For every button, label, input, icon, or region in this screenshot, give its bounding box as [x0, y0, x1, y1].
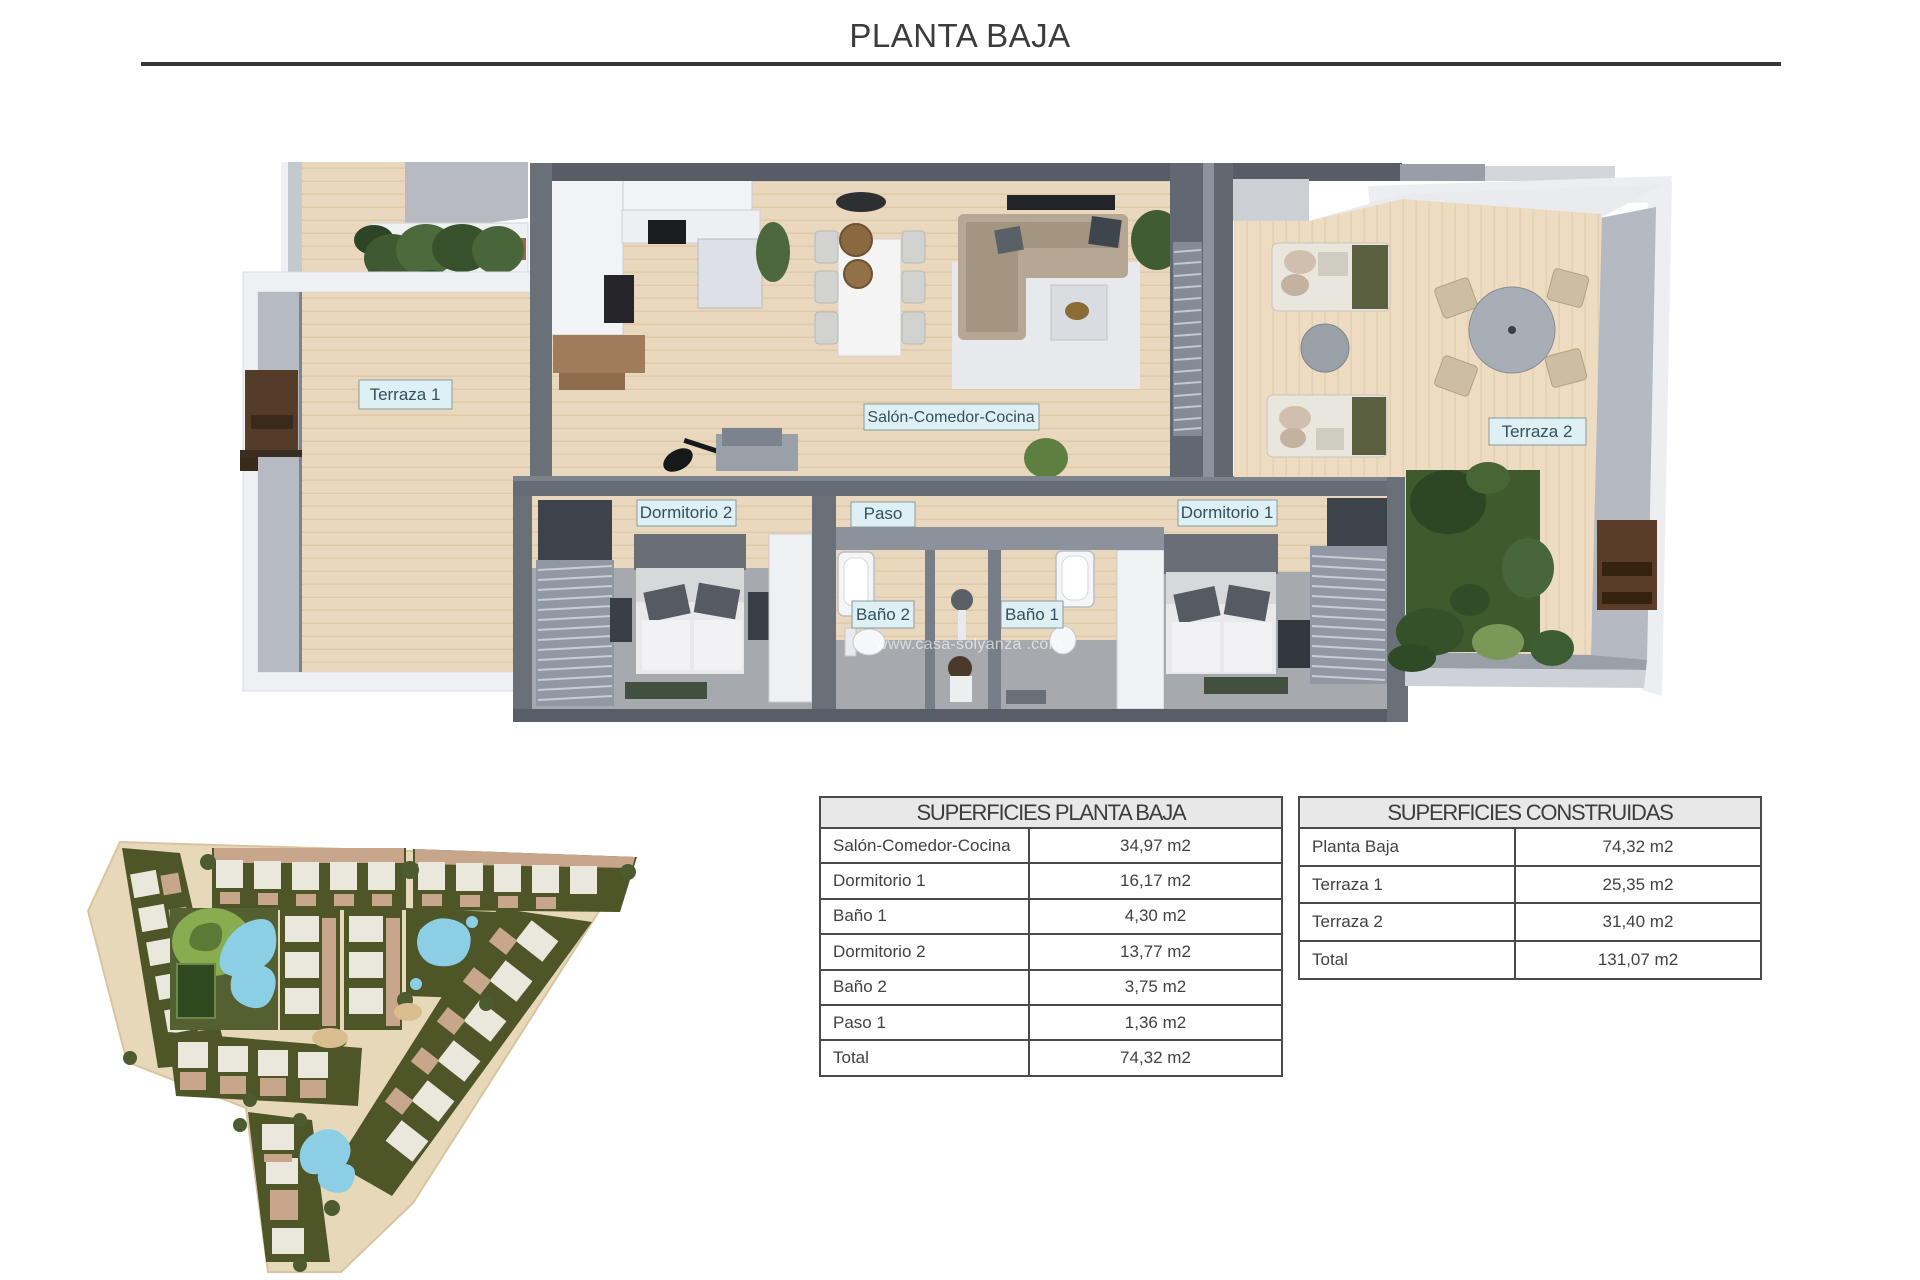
- svg-text:Paso: Paso: [864, 504, 903, 523]
- svg-text:Dormitorio 2: Dormitorio 2: [640, 503, 733, 522]
- svg-text:www.casa-solyanza .com: www.casa-solyanza .com: [875, 636, 1062, 653]
- svg-text:Dormitorio 1: Dormitorio 1: [1181, 503, 1274, 522]
- svg-text:Baño 1: Baño 1: [1005, 605, 1059, 624]
- svg-text:Salón-Comedor-Cocina: Salón-Comedor-Cocina: [867, 409, 1034, 426]
- svg-text:Baño 2: Baño 2: [856, 605, 910, 624]
- svg-text:Terraza 1: Terraza 1: [370, 385, 441, 404]
- svg-text:Terraza 2: Terraza 2: [1502, 422, 1573, 441]
